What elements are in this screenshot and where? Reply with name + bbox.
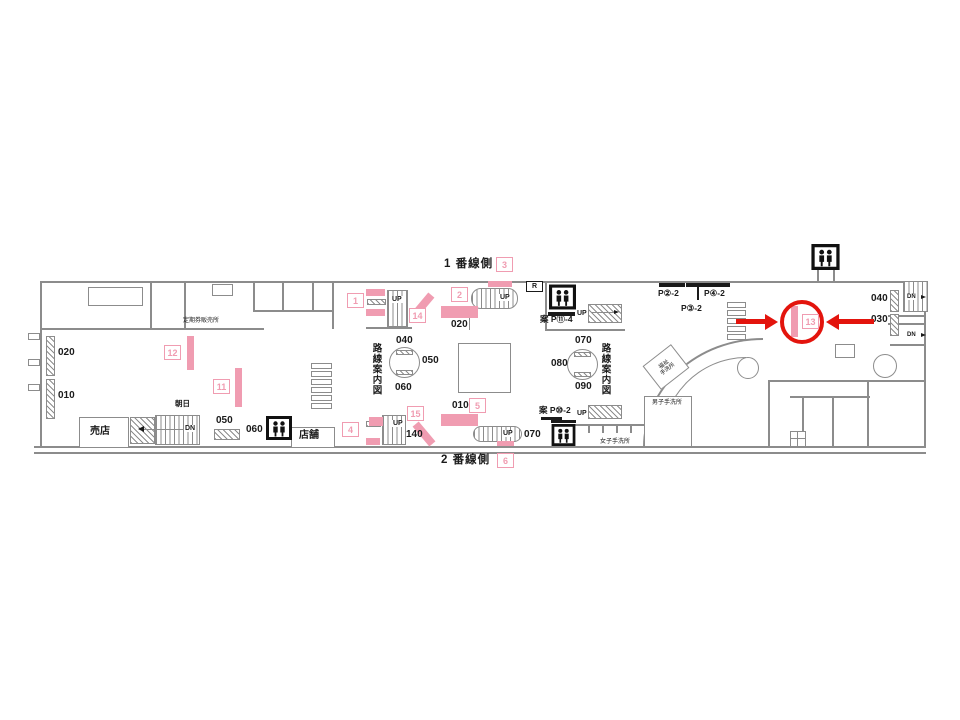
wall bbox=[40, 281, 926, 283]
position-number: 010 bbox=[452, 401, 469, 411]
ad-position-marker-14[interactable]: 14 bbox=[409, 308, 426, 323]
position-number: 070 bbox=[524, 430, 541, 440]
wall-tick bbox=[28, 384, 40, 391]
position-number: 050 bbox=[216, 416, 233, 426]
ad-position-marker-2[interactable]: 2 bbox=[451, 287, 468, 302]
fountain bbox=[214, 429, 240, 440]
gate-slat bbox=[311, 403, 332, 409]
pillar bbox=[890, 314, 899, 336]
stairs-up bbox=[588, 405, 622, 419]
guide-sign-p11: 案 P⑪-4 bbox=[540, 315, 573, 324]
ad-panel bbox=[366, 438, 380, 445]
ad-panel bbox=[369, 417, 383, 426]
highlight-arrow-left bbox=[736, 319, 766, 324]
wall bbox=[630, 424, 632, 433]
highlight-arrow-right-head bbox=[826, 314, 839, 330]
wall bbox=[890, 344, 926, 346]
stair-arrow-line bbox=[142, 429, 188, 430]
wall bbox=[817, 269, 819, 282]
ad-position-marker-4[interactable]: 4 bbox=[342, 422, 359, 437]
stair-arrow-head bbox=[921, 333, 926, 337]
r-sign: R bbox=[526, 281, 543, 292]
platform-1-label: 1 番線側 bbox=[444, 259, 493, 271]
dn-label: DN bbox=[906, 294, 917, 300]
wall bbox=[797, 431, 798, 447]
wall bbox=[253, 310, 333, 312]
round-pillar bbox=[873, 354, 897, 378]
ad-panel bbox=[441, 414, 478, 426]
wall bbox=[833, 269, 835, 282]
wall-tick bbox=[28, 333, 40, 340]
wall bbox=[332, 281, 334, 329]
wall bbox=[832, 396, 834, 447]
ad-panel bbox=[187, 336, 194, 370]
ad-position-marker-3[interactable]: 3 bbox=[496, 257, 513, 272]
pillar-hatch bbox=[574, 352, 591, 357]
ad-position-marker-11[interactable]: 11 bbox=[213, 379, 230, 394]
sign-bar bbox=[659, 283, 685, 287]
wall bbox=[768, 380, 770, 447]
gate-slat bbox=[727, 302, 746, 308]
ad-panel bbox=[235, 368, 242, 407]
route-map-label-1: 路線案内図 bbox=[371, 343, 381, 401]
pillar-hatch bbox=[396, 370, 413, 375]
wall bbox=[150, 281, 152, 329]
elevator-icon bbox=[549, 284, 576, 310]
position-number: 080 bbox=[551, 359, 568, 369]
ad-position-marker-15[interactable]: 15 bbox=[407, 406, 424, 421]
position-number: 040 bbox=[871, 294, 888, 304]
dn-label: DN bbox=[906, 332, 917, 338]
square-pillar bbox=[458, 343, 511, 393]
wall bbox=[768, 380, 925, 382]
guide-sign-p3: P③-2 bbox=[681, 304, 702, 313]
asahi-label: 朝日 bbox=[175, 400, 190, 408]
pillar bbox=[890, 290, 899, 312]
kiosk-label: 売店 bbox=[90, 427, 110, 437]
round-pillar bbox=[737, 357, 759, 379]
elevator-icon bbox=[266, 416, 292, 440]
wall bbox=[40, 328, 264, 330]
wall bbox=[588, 424, 590, 433]
ad-panel bbox=[441, 306, 478, 318]
platform-2-label: 2 番線側 bbox=[441, 455, 490, 467]
room bbox=[835, 344, 855, 358]
stair-arrow-head bbox=[614, 310, 619, 314]
ad-panel bbox=[488, 281, 512, 287]
up-label: UP bbox=[576, 310, 588, 317]
sign-bar bbox=[551, 420, 576, 423]
gate-slat bbox=[727, 334, 746, 340]
escalator-up bbox=[471, 288, 518, 309]
up-label: UP bbox=[392, 420, 404, 427]
highlight-arrow-right bbox=[839, 319, 874, 324]
ad-panel bbox=[497, 441, 514, 446]
up-label: UP bbox=[499, 294, 511, 301]
gate-slat bbox=[311, 363, 332, 369]
elevator-icon bbox=[551, 424, 576, 446]
ad-panel bbox=[366, 289, 385, 296]
guide-sign-p4: P④-2 bbox=[704, 289, 725, 298]
position-number: 060 bbox=[395, 383, 412, 393]
gate-slat bbox=[311, 371, 332, 377]
gate-slat bbox=[311, 387, 332, 393]
room bbox=[212, 284, 233, 296]
up-label: UP bbox=[502, 430, 514, 437]
wall bbox=[40, 281, 42, 448]
wall bbox=[545, 329, 625, 331]
wall bbox=[366, 327, 412, 329]
station-floor-plan: 福祉手洗所 bbox=[0, 0, 960, 720]
stair-arrow-head bbox=[138, 426, 144, 432]
wall bbox=[602, 424, 604, 433]
gate-slat bbox=[727, 310, 746, 316]
wall-tick bbox=[28, 359, 40, 366]
elevator-icon bbox=[811, 244, 840, 270]
up-label: UP bbox=[391, 296, 403, 303]
sign-bar bbox=[686, 283, 730, 287]
up-label: UP bbox=[576, 410, 588, 417]
pillar bbox=[46, 336, 55, 376]
position-number: 020 bbox=[451, 320, 468, 330]
room bbox=[88, 287, 143, 306]
position-number: 050 bbox=[422, 356, 439, 366]
highlight-arrow-left-head bbox=[765, 314, 778, 330]
stair-arrow-line bbox=[591, 312, 615, 313]
gate-slat bbox=[727, 326, 746, 332]
dn-label: DN bbox=[184, 425, 196, 432]
position-number: 090 bbox=[575, 382, 592, 392]
wall bbox=[469, 317, 470, 330]
position-number: 010 bbox=[58, 391, 75, 401]
position-number: 140 bbox=[406, 430, 423, 440]
position-number: 020 bbox=[58, 348, 75, 358]
position-number: 060 bbox=[246, 425, 263, 435]
gate-slat bbox=[311, 379, 332, 385]
position-number: 040 bbox=[396, 336, 413, 346]
wall bbox=[253, 281, 255, 311]
wall bbox=[616, 424, 618, 433]
ad-position-marker-12[interactable]: 12 bbox=[164, 345, 181, 360]
ad-position-marker-6[interactable]: 6 bbox=[497, 453, 514, 468]
wall bbox=[312, 281, 314, 311]
pass-office-label: 定期券販売所 bbox=[183, 318, 219, 324]
ad-panel bbox=[366, 309, 385, 316]
womens-restroom-label: 女子手洗所 bbox=[600, 439, 630, 445]
pillar-hatch bbox=[396, 350, 413, 355]
position-number: 070 bbox=[575, 336, 592, 346]
guide-sign-p2: P②-2 bbox=[658, 289, 679, 298]
shop-label: 店舗 bbox=[299, 431, 319, 441]
accessible-restroom-label: 福祉手洗所 bbox=[656, 357, 677, 377]
pillar-hatch bbox=[574, 372, 591, 377]
escalator-up bbox=[473, 426, 522, 442]
wall bbox=[867, 380, 869, 447]
ad-position-marker-5[interactable]: 5 bbox=[469, 398, 486, 413]
mens-restroom-label: 男子手洗所 bbox=[652, 400, 682, 406]
sign-stem bbox=[697, 287, 699, 300]
route-map-label-2: 路線案内図 bbox=[600, 343, 610, 401]
stair-arrow-head bbox=[921, 295, 926, 299]
ad-position-marker-1[interactable]: 1 bbox=[347, 293, 364, 308]
wall bbox=[282, 281, 284, 311]
gate-slat bbox=[311, 395, 332, 401]
pillar bbox=[46, 379, 55, 419]
stairs-landing bbox=[367, 299, 386, 305]
guide-sign-p10: 案 P⑩-2 bbox=[539, 406, 571, 415]
ad-position-marker-13[interactable]: 13 bbox=[802, 314, 819, 329]
